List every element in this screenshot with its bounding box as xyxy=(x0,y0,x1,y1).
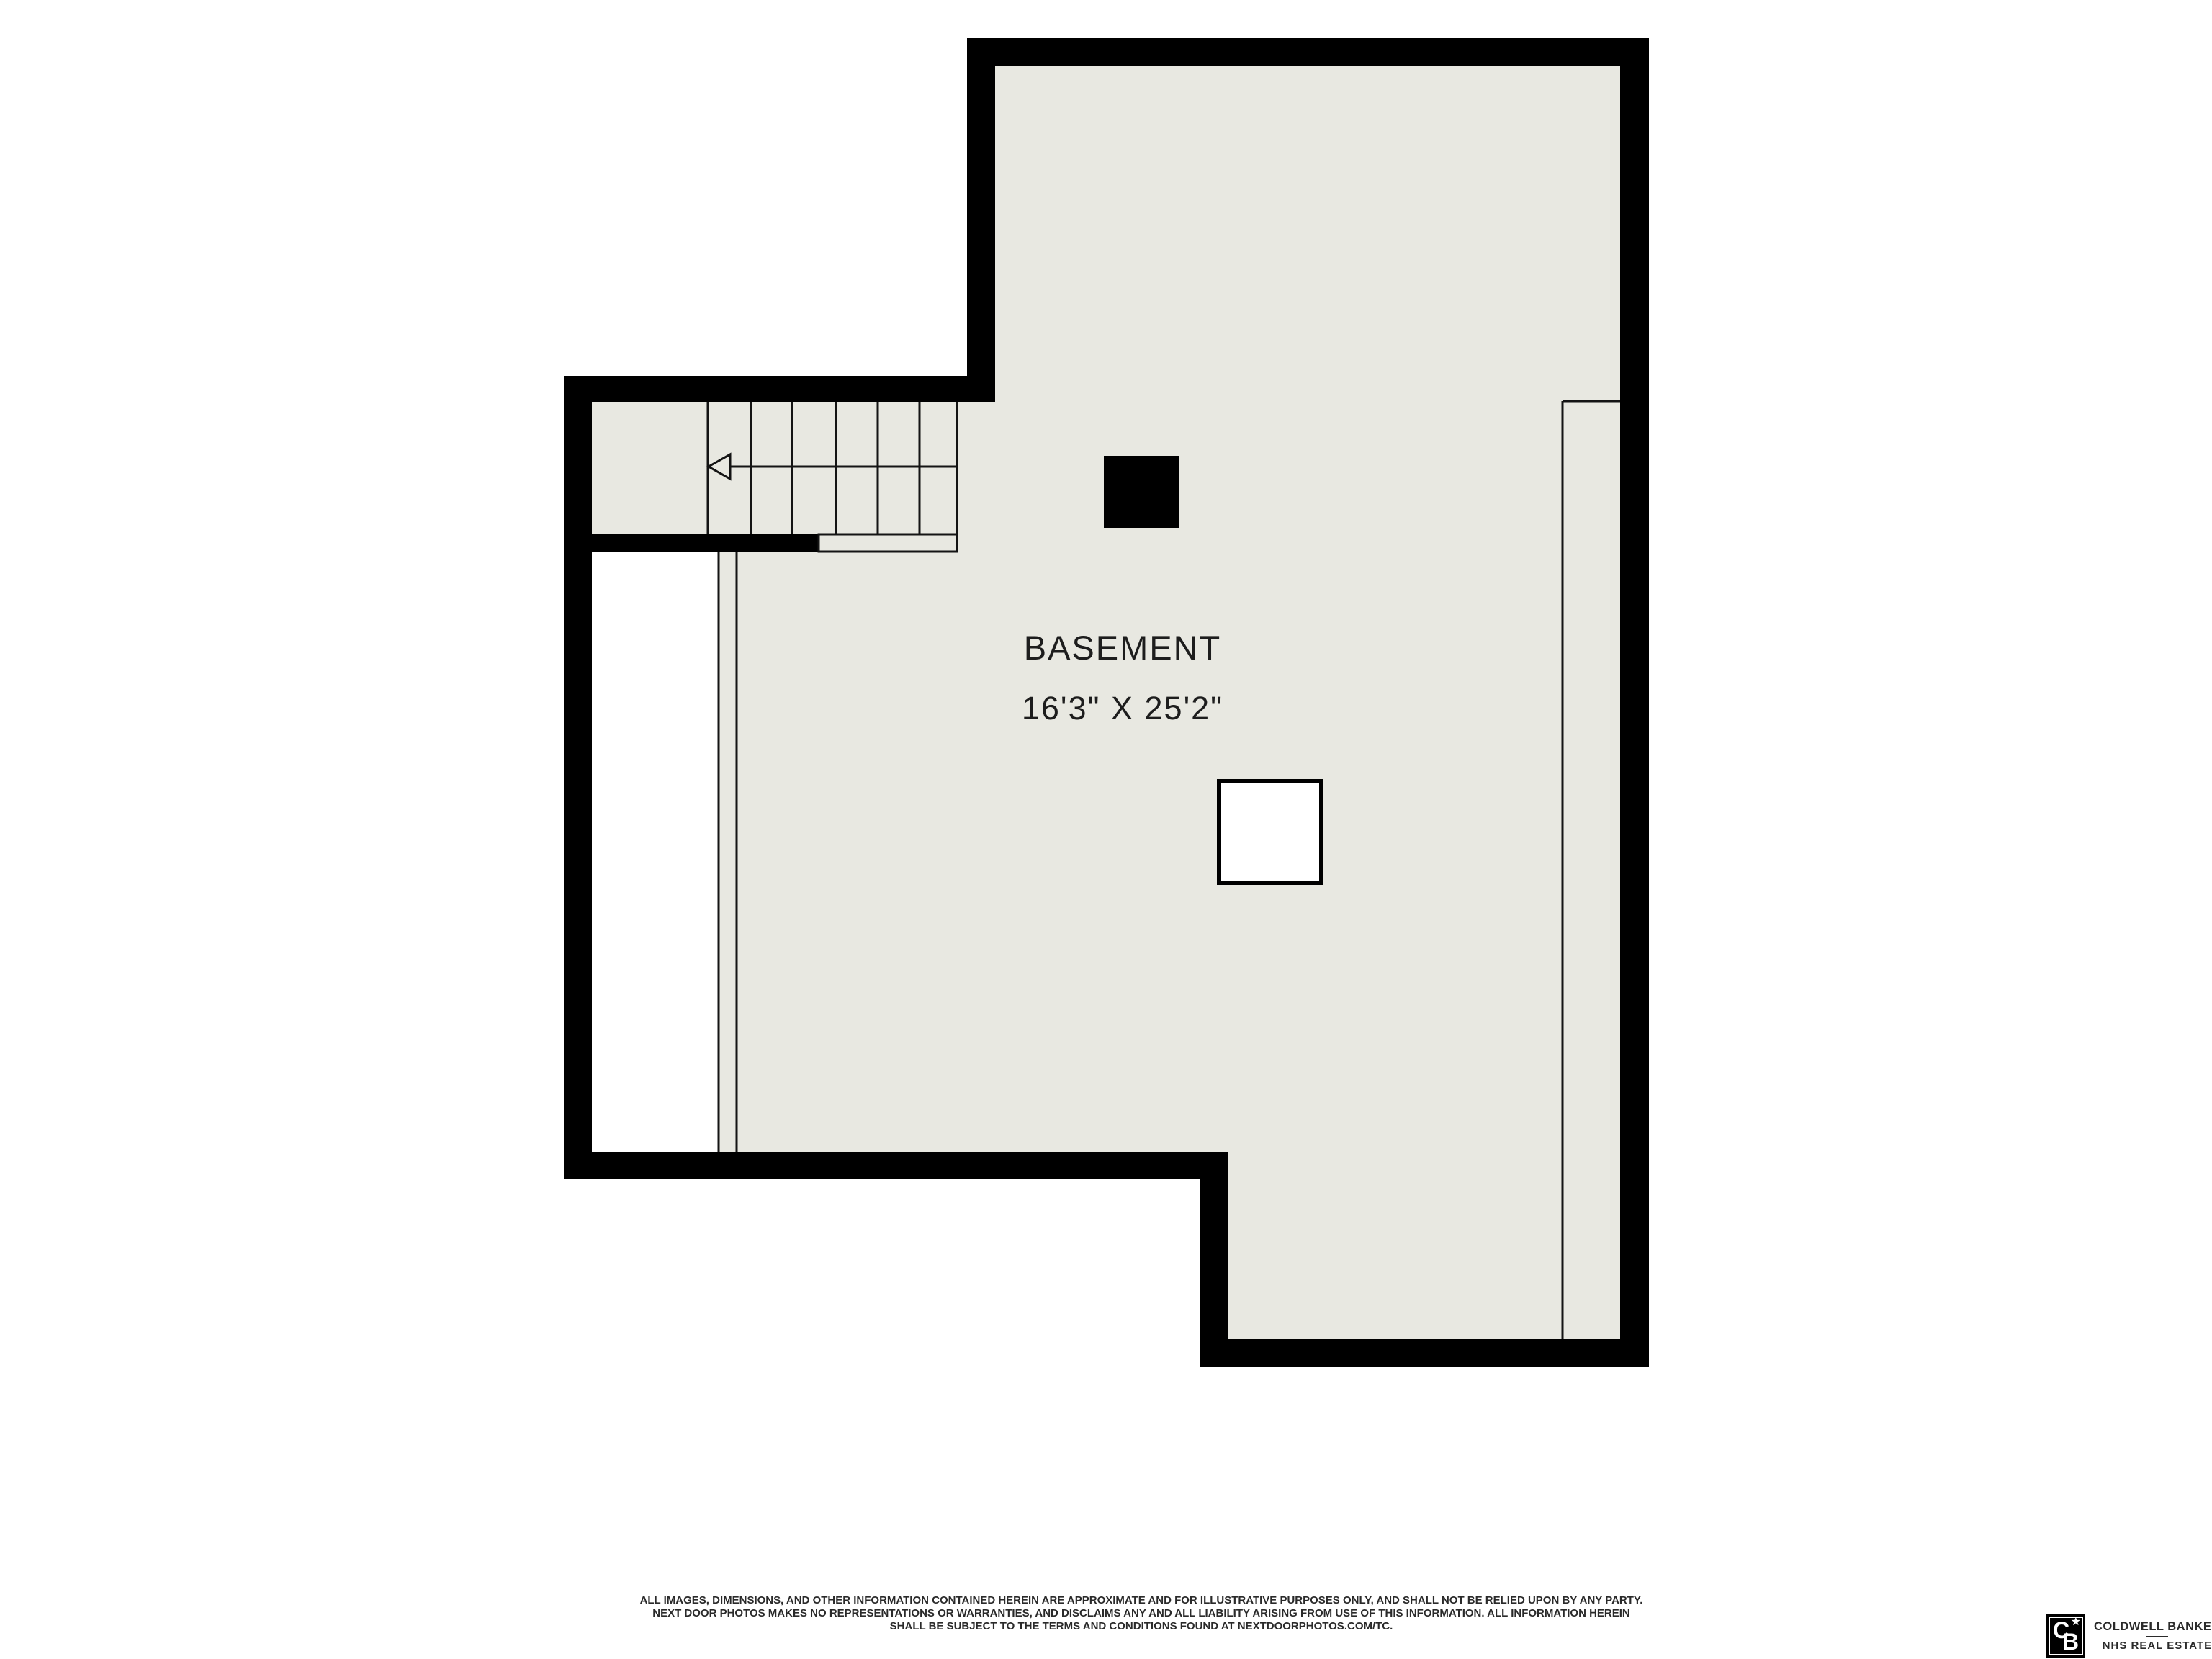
brand-text: COLDWELL BANKER NHS REAL ESTATE xyxy=(2094,1614,2212,1652)
monogram-b: B xyxy=(2062,1629,2079,1654)
disclaimer-line-2: NEXT DOOR PHOTOS MAKES NO REPRESENTATION… xyxy=(594,1607,1689,1620)
coldwell-banker-logo: C B ★ COLDWELL BANKER NHS REAL ESTATE xyxy=(2046,1614,2212,1658)
disclaimer-line-1: ALL IMAGES, DIMENSIONS, AND OTHER INFORM… xyxy=(594,1594,1689,1607)
stair-ledge-outline xyxy=(819,534,957,552)
brand-divider xyxy=(2146,1636,2168,1637)
brand-name-line2: NHS REAL ESTATE xyxy=(2094,1640,2212,1652)
disclaimer-line-3: SHALL BE SUBJECT TO THE TERMS AND CONDIT… xyxy=(594,1620,1689,1633)
room-dimensions: 16'3" X 25'2" xyxy=(1022,678,1223,739)
room-label: BASEMENT 16'3" X 25'2" xyxy=(1022,618,1223,739)
room-name: BASEMENT xyxy=(1022,618,1223,678)
unexcavated-area xyxy=(592,552,719,1152)
cb-monogram-icon: C B ★ xyxy=(2046,1614,2085,1658)
disclaimer-text: ALL IMAGES, DIMENSIONS, AND OTHER INFORM… xyxy=(594,1594,1689,1633)
brand-name-line1: COLDWELL BANKER xyxy=(2094,1620,2212,1634)
utility-box xyxy=(1219,781,1321,883)
floor-plan-page: BASEMENT 16'3" X 25'2" ALL IMAGES, DIMEN… xyxy=(0,0,2212,1659)
basement-floor-plan xyxy=(0,0,2212,1659)
star-icon: ★ xyxy=(2071,1617,2081,1628)
interior-wall-below-stairs xyxy=(592,534,819,552)
support-post xyxy=(1104,456,1179,528)
